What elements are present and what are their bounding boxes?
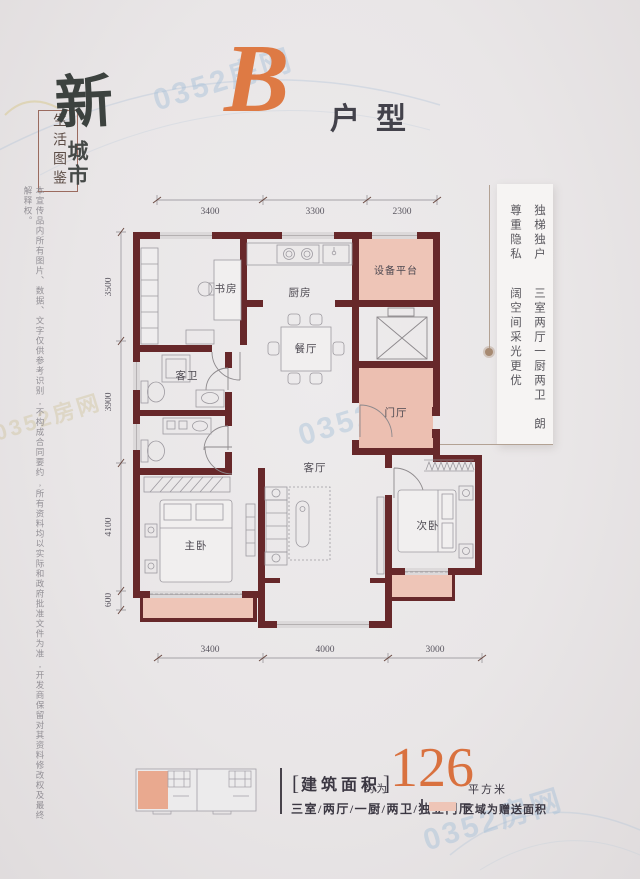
watermark-left: 0352房网 xyxy=(0,384,105,447)
study-furniture xyxy=(141,248,241,344)
dim-bottom-3: 3000 xyxy=(426,645,445,655)
room-label-guest-bath: 客卫 xyxy=(176,369,199,382)
kitchen-furniture xyxy=(247,243,352,265)
dim-left-1: 3500 xyxy=(105,277,114,296)
room-label-kitchen: 厨房 xyxy=(289,286,312,299)
dim-left-2: 3900 xyxy=(105,392,114,411)
dim-top-1: 3400 xyxy=(201,207,220,217)
elevator-shaft xyxy=(377,308,427,359)
bracket-left: [ xyxy=(292,773,299,794)
room-label-foyer: 门厅 xyxy=(385,406,408,419)
footer-divider xyxy=(280,768,282,814)
legend-divider xyxy=(421,799,423,813)
brand-calligraphy: 新 xyxy=(54,73,115,134)
dim-top-2: 3300 xyxy=(306,207,325,217)
disclaimer-text: 本宣传品内所有图片、数据、文字仅供参考识别,不构成合同要约,所有资料均以实际和政… xyxy=(22,186,46,826)
unit-type-label: 户型 xyxy=(330,94,422,138)
dim-bottom-2: 4000 xyxy=(316,645,335,655)
feature-line-1: 独梯独户 尊重隐私 xyxy=(499,204,551,287)
unit-letter: B xyxy=(224,30,289,128)
feature-card: 独梯独户 尊重隐私 三室两厅一厨两卫 朗阔空间采光更优 xyxy=(497,184,553,445)
room-label-dining: 餐厅 xyxy=(295,342,318,355)
dim-bottom-1: 3400 xyxy=(201,645,220,655)
key-plan-highlight xyxy=(138,771,168,809)
room-label-master: 主卧 xyxy=(185,539,208,552)
area-approx-label: 约为 xyxy=(364,781,389,796)
living-room-furniture xyxy=(265,487,384,574)
master-bath-fixtures xyxy=(141,418,211,462)
room-label-second: 次卧 xyxy=(417,519,440,532)
legend-note: 区域为赠送面积 xyxy=(463,801,547,817)
floor-plan-svg: 3400 3300 2300 3500 3900 4100 600 3400 4… xyxy=(105,190,497,670)
legend-pink-swatch xyxy=(429,802,456,811)
second-bedroom-furniture xyxy=(398,460,474,558)
key-plan xyxy=(133,766,263,818)
brand-city-label: 城市 xyxy=(62,140,92,188)
feature-line-2: 三室两厅一厨两卫 朗阔空间采光更优 xyxy=(499,287,551,445)
room-label-study: 书房 xyxy=(215,282,238,295)
dim-top-3: 2300 xyxy=(393,207,412,217)
floorplan-poster: 0352房网 0352房网 0352房网 0352房网 生活图鉴 新 城市 B … xyxy=(0,0,640,879)
dim-left-4: 600 xyxy=(105,593,114,608)
master-bedroom-furniture xyxy=(144,477,255,582)
room-label-equipment: 设备平台 xyxy=(374,264,418,277)
room-label-living: 客厅 xyxy=(304,461,327,474)
area-unit-label: 平方米 xyxy=(468,781,507,797)
area-value: 126 xyxy=(390,740,474,796)
dim-left-3: 4100 xyxy=(105,517,114,536)
